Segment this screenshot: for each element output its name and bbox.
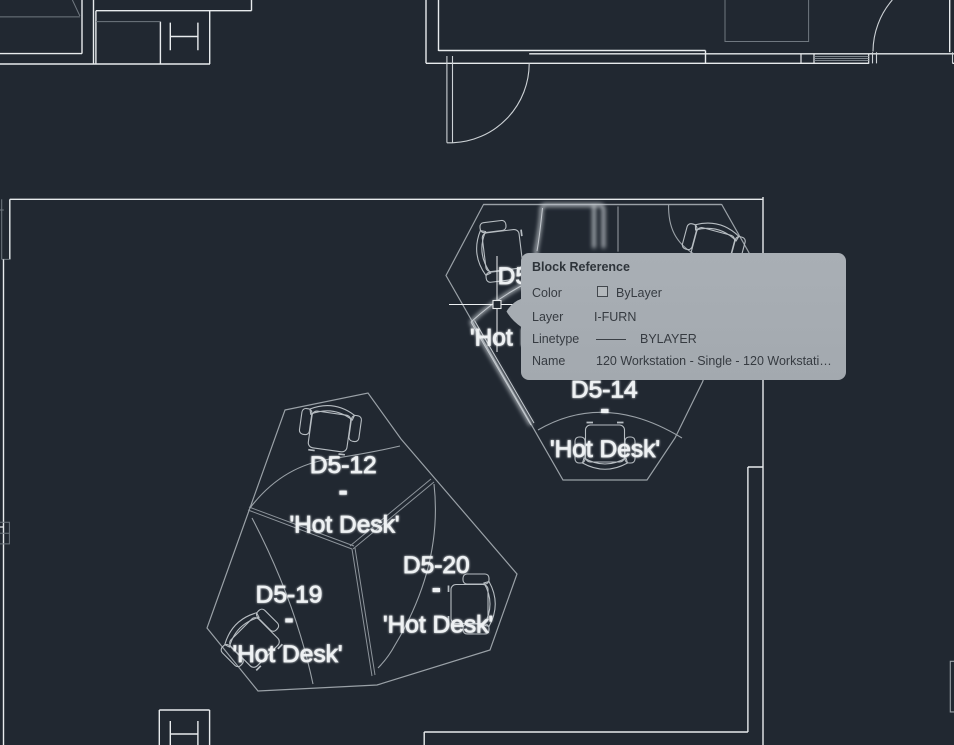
svg-text:D5-19: D5-19 bbox=[256, 582, 323, 609]
svg-text:'Hot Desk': 'Hot Desk' bbox=[383, 611, 493, 638]
svg-text:'Hot Desk': 'Hot Desk' bbox=[232, 641, 342, 668]
svg-text:'Hot Desk': 'Hot Desk' bbox=[289, 511, 399, 538]
svg-text:D5-12: D5-12 bbox=[310, 452, 377, 479]
svg-text:'Hot Desk': 'Hot Desk' bbox=[550, 436, 660, 463]
svg-text:D5-20: D5-20 bbox=[403, 552, 470, 579]
svg-text:D5-14: D5-14 bbox=[571, 377, 638, 404]
